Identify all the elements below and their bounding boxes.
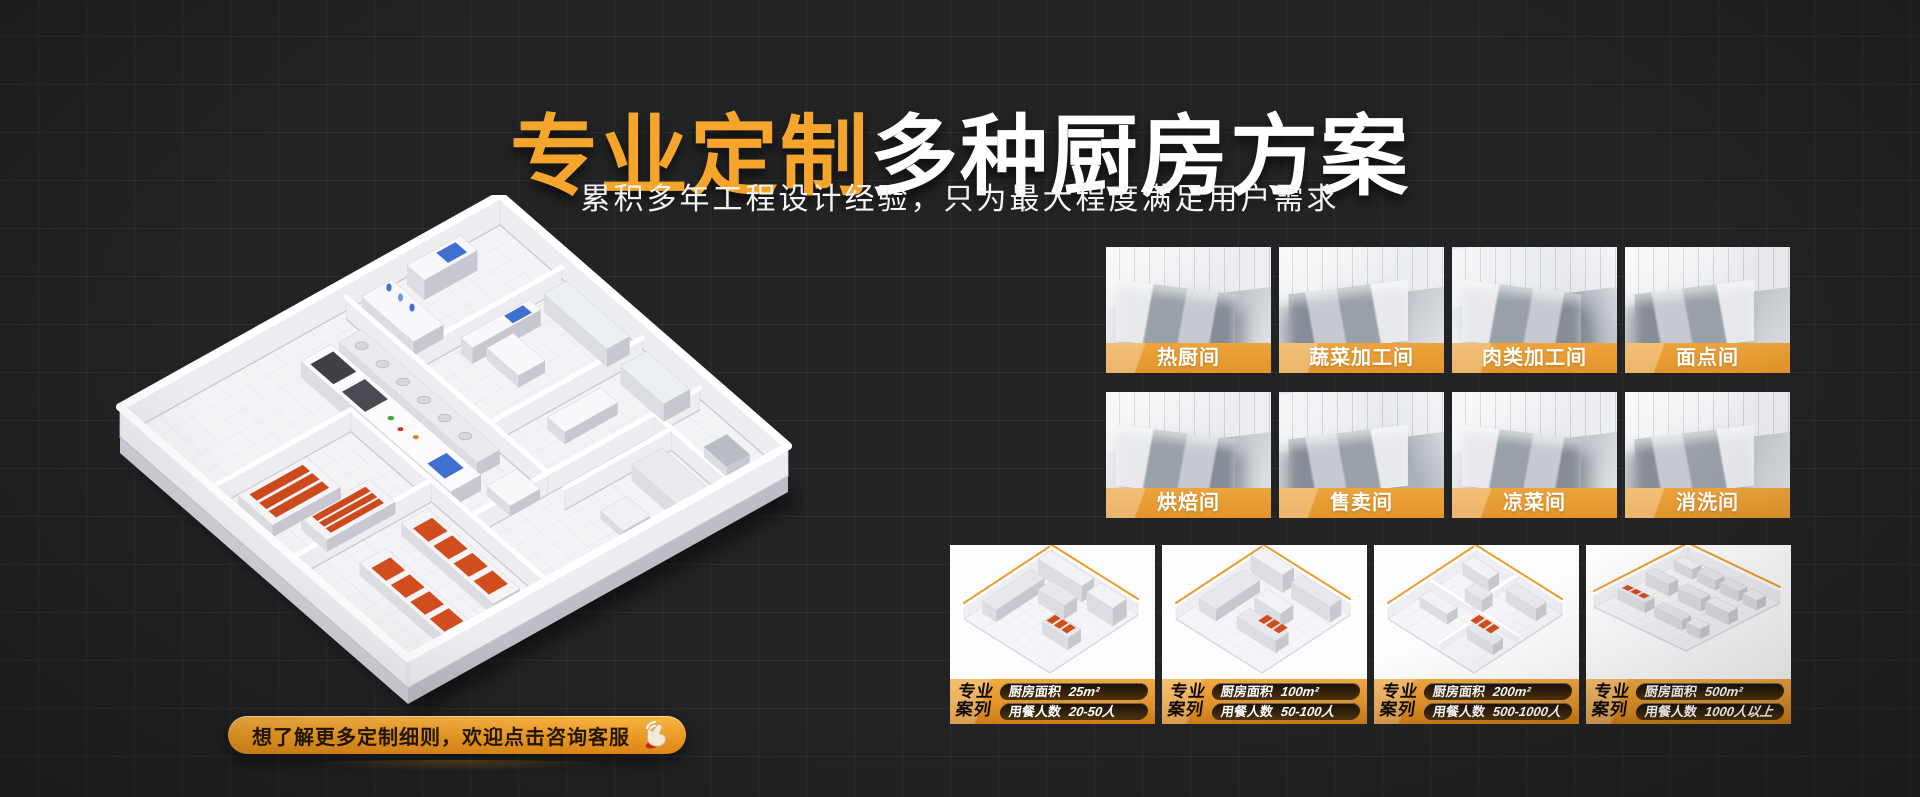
room-photo (1452, 392, 1617, 488)
case-diners-value: 50-100人 (1280, 704, 1336, 719)
case-photo (1162, 545, 1367, 679)
room-photo (1106, 247, 1271, 343)
room-photo (1452, 247, 1617, 343)
case-area-pill: 厨房面积25m² (999, 683, 1149, 700)
room-label: 烘焙间 (1106, 488, 1271, 518)
case-area-pill: 厨房面积100m² (1211, 683, 1361, 700)
case-card[interactable]: 专业案列 厨房面积500m² 用餐人数1000人以上 (1586, 545, 1791, 724)
case-area-value: 25m² (1068, 684, 1100, 699)
room-photo (1106, 392, 1271, 488)
room-card[interactable]: 售卖间 (1279, 392, 1444, 518)
case-area-value: 200m² (1492, 684, 1532, 699)
case-card[interactable]: 专业案列 厨房面积200m² 用餐人数500-1000人 (1374, 545, 1579, 724)
case-pills: 厨房面积200m² 用餐人数500-1000人 (1424, 683, 1572, 720)
case-floorplan-illustration (1374, 545, 1579, 679)
room-card[interactable]: 烘焙间 (1106, 392, 1271, 518)
room-photo (1625, 247, 1790, 343)
room-label: 售卖间 (1279, 488, 1444, 518)
promo-banner: { "colors": { "accent_orange": "#F5A52B"… (0, 0, 1920, 797)
kitchen-floorplan-illustration (90, 195, 810, 735)
case-floorplan-illustration (950, 545, 1155, 679)
case-tag: 专业案列 (1590, 683, 1631, 720)
click-hand-icon (638, 718, 672, 752)
contact-cta-button[interactable]: 想了解更多定制细则，欢迎点击咨询客服 (228, 716, 686, 754)
kitchen-floorplan (90, 195, 810, 735)
room-label: 肉类加工间 (1452, 343, 1617, 373)
case-footer: 专业案列 厨房面积25m² 用餐人数20-50人 (950, 679, 1155, 724)
case-floorplan-illustration (1586, 545, 1791, 679)
room-photo (1625, 392, 1790, 488)
room-card[interactable]: 蔬菜加工间 (1279, 247, 1444, 373)
case-diners-pill: 用餐人数500-1000人 (1423, 703, 1573, 720)
case-tag: 专业案列 (1378, 683, 1419, 720)
case-pills: 厨房面积25m² 用餐人数20-50人 (1000, 683, 1148, 720)
case-photo (1586, 545, 1791, 679)
room-photo (1279, 247, 1444, 343)
case-diners-pill: 用餐人数1000人以上 (1635, 703, 1785, 720)
case-floorplan-illustration (1162, 545, 1367, 679)
room-label: 面点间 (1625, 343, 1790, 373)
room-card[interactable]: 消洗间 (1625, 392, 1790, 518)
case-pills: 厨房面积500m² 用餐人数1000人以上 (1636, 683, 1784, 720)
contact-cta-label: 想了解更多定制细则，欢迎点击咨询客服 (252, 721, 630, 750)
case-area-pill: 厨房面积200m² (1423, 683, 1573, 700)
case-photo (1374, 545, 1579, 679)
case-footer: 专业案列 厨房面积200m² 用餐人数500-1000人 (1374, 679, 1579, 724)
room-label: 消洗间 (1625, 488, 1790, 518)
case-card[interactable]: 专业案列 厨房面积100m² 用餐人数50-100人 (1162, 545, 1367, 724)
case-area-value: 100m² (1280, 684, 1320, 699)
room-grid: 热厨间 蔬菜加工间 肉类加工间 面点间 烘焙间 售卖间 凉菜间 消洗间 (1106, 247, 1790, 518)
room-card[interactable]: 肉类加工间 (1452, 247, 1617, 373)
case-footer: 专业案列 厨房面积500m² 用餐人数1000人以上 (1586, 679, 1791, 724)
room-card[interactable]: 热厨间 (1106, 247, 1271, 373)
case-diners-pill: 用餐人数50-100人 (1211, 703, 1361, 720)
case-diners-value: 1000人以上 (1704, 704, 1774, 719)
case-tag: 专业案列 (1166, 683, 1207, 720)
room-label: 热厨间 (1106, 343, 1271, 373)
case-diners-value: 20-50人 (1068, 704, 1116, 719)
room-label: 凉菜间 (1452, 488, 1617, 518)
case-card[interactable]: 专业案列 厨房面积25m² 用餐人数20-50人 (950, 545, 1155, 724)
case-pills: 厨房面积100m² 用餐人数50-100人 (1212, 683, 1360, 720)
room-card[interactable]: 凉菜间 (1452, 392, 1617, 518)
room-photo (1279, 392, 1444, 488)
room-card[interactable]: 面点间 (1625, 247, 1790, 373)
case-area-pill: 厨房面积500m² (1635, 683, 1785, 700)
case-area-value: 500m² (1704, 684, 1744, 699)
case-diners-pill: 用餐人数20-50人 (999, 703, 1149, 720)
case-photo (950, 545, 1155, 679)
room-label: 蔬菜加工间 (1279, 343, 1444, 373)
case-diners-value: 500-1000人 (1492, 704, 1562, 719)
case-footer: 专业案列 厨房面积100m² 用餐人数50-100人 (1162, 679, 1367, 724)
case-grid: 专业案列 厨房面积25m² 用餐人数20-50人 专业案列 厨房面积100m² … (950, 545, 1791, 724)
case-tag: 专业案列 (954, 683, 995, 720)
